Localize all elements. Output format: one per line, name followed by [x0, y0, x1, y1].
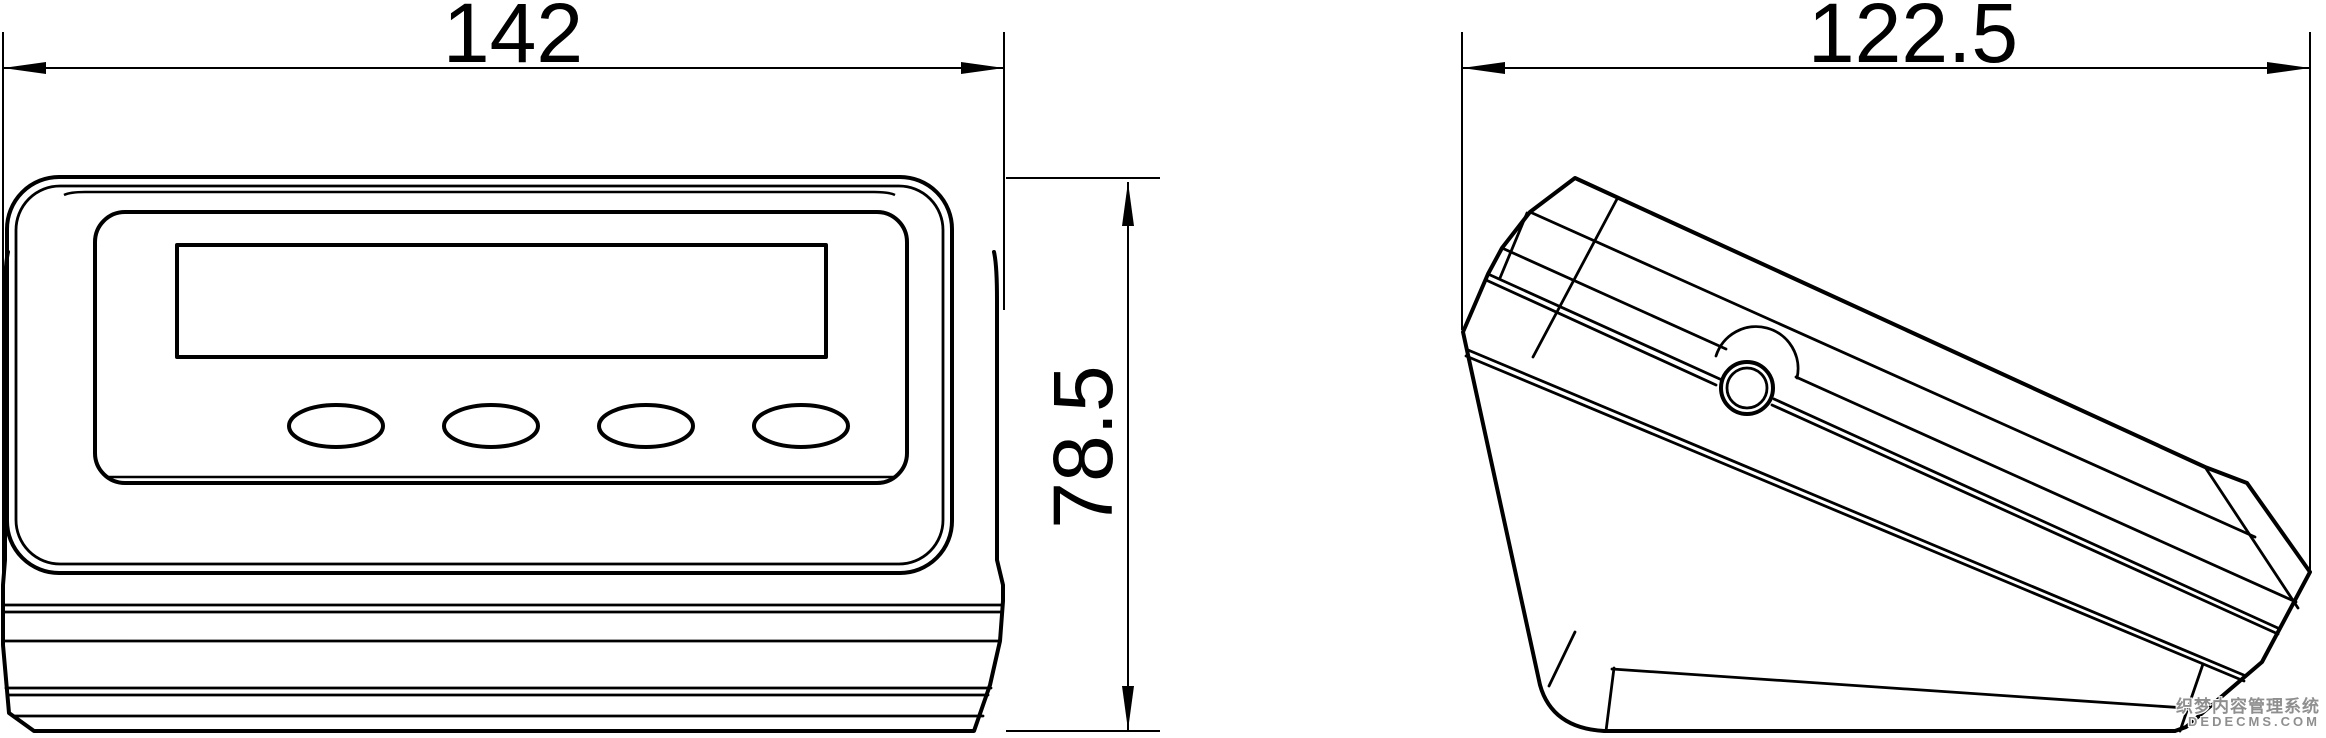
mounting-knob — [1716, 327, 1798, 414]
button-row — [289, 405, 848, 447]
arrowhead-left-icon — [1462, 62, 1505, 74]
dimension-label-front-width: 142 — [443, 0, 583, 80]
front-view: 142 78.5 — [3, 0, 1160, 731]
watermark: 织梦内容管理系统 DEDECMS.COM — [2176, 698, 2320, 729]
front-body-outline — [3, 252, 1003, 731]
button-2 — [444, 405, 538, 447]
knob-inner-circle — [1727, 368, 1767, 408]
arrowhead-right-icon — [961, 62, 1004, 74]
display-window — [177, 245, 826, 357]
front-width-dimension: 142 — [3, 0, 1004, 600]
side-width-dimension: 122.5 — [1462, 0, 2310, 570]
knob-outer-circle — [1721, 362, 1773, 414]
technical-drawing-page: { "drawing_type": "dimensioned outline d… — [0, 0, 2326, 733]
indicator-dimension-drawing: 142 78.5 — [0, 0, 2326, 733]
button-3 — [599, 405, 693, 447]
button-1 — [289, 405, 383, 447]
side-panel-edge-lines — [1466, 212, 2296, 681]
watermark-line2: DEDECMS.COM — [2176, 715, 2320, 729]
watermark-line1: 织梦内容管理系统 — [2176, 698, 2320, 716]
keypad-bezel — [95, 212, 907, 483]
arrowhead-up-icon — [1122, 182, 1134, 226]
faceplate-top-accent-line — [64, 192, 895, 195]
arrowhead-left-icon — [3, 62, 46, 74]
front-case-seam-lines — [4, 605, 1002, 716]
dimension-label-front-height: 78.5 — [1036, 365, 1130, 529]
arrowhead-down-icon — [1122, 686, 1134, 730]
side-body-outline — [1463, 178, 2310, 731]
dimension-label-side-width: 122.5 — [1808, 0, 2018, 80]
button-4 — [754, 405, 848, 447]
drawing-canvas: 142 78.5 — [0, 0, 2326, 738]
faceplate-inner — [16, 186, 943, 564]
side-base-lines — [1549, 632, 2186, 731]
side-view: 122.5 — [1462, 0, 2310, 731]
front-height-dimension: 78.5 — [1006, 178, 1160, 731]
arrowhead-right-icon — [2267, 62, 2310, 74]
faceplate-outer — [7, 177, 952, 573]
